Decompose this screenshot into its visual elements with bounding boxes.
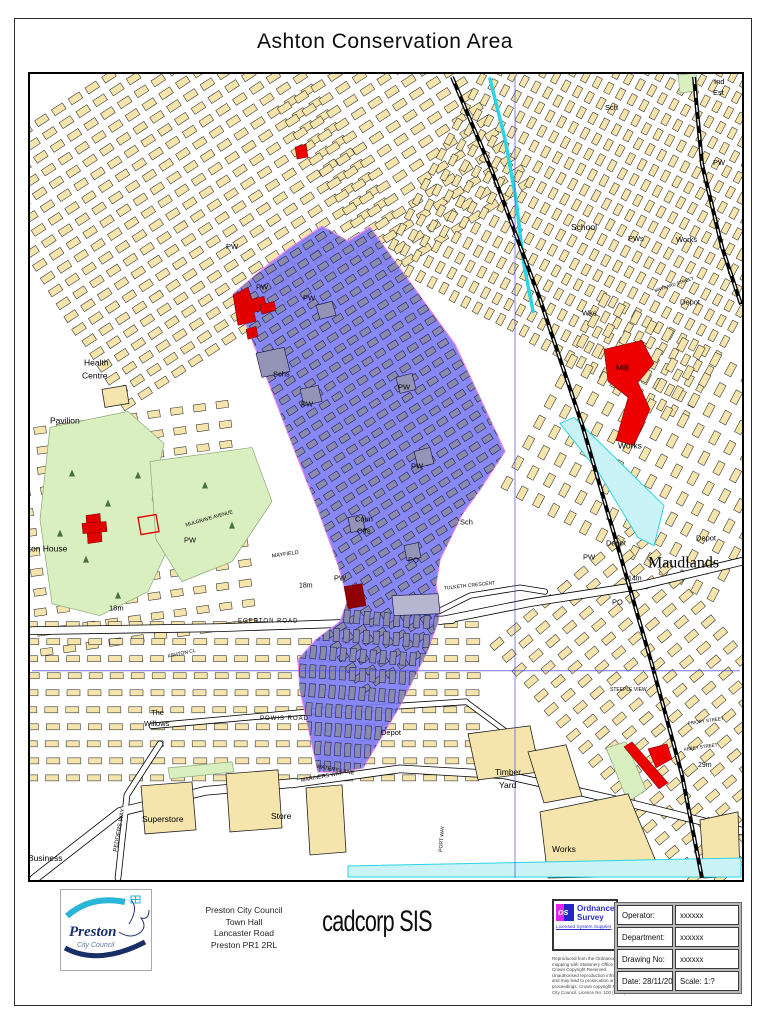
map-label: Sch [460,518,473,527]
map-label: PW [411,461,424,470]
map-label: STEEPLE VIEW [610,687,647,693]
map-label: Willows [144,719,170,728]
map-label: PW [583,553,596,562]
map-label: EGERTON ROAD [238,619,298,625]
map-label: PW [713,158,726,167]
map-label: Sch [605,103,618,112]
address-line: Preston PR1 2RL [158,940,330,952]
map-label: Depot [696,534,717,543]
drawing-info-table: Operator: xxxxxx Department: xxxxxx Draw… [614,902,742,994]
map-label: Centre [82,370,108,380]
map-root: eHealthCentrePavilionAshton House18mTheW… [30,74,742,880]
map-label: ABBEY STREET [683,742,718,752]
map-label: 14m [628,576,642,583]
map-label: PW [256,282,269,291]
os-mark-abbr: os [558,907,569,917]
map-label: POWIS ROAD [260,716,309,722]
table-row: Operator: xxxxxx [617,905,739,925]
ordnance-survey-logo: os Ordnance Survey Licensed System Suppl… [552,899,618,951]
map-label: Business [30,853,62,863]
map-label: MAYNARD STREET [654,276,695,294]
map-label: Wks [582,308,597,317]
drawing-no-value: xxxxxx [675,949,739,969]
map-label: PO [408,556,419,565]
os-tagline: Licensed System Supplier [556,925,614,930]
os-name-line: Survey [577,913,614,922]
operator-label: Operator: [617,905,673,925]
department-value: xxxxxx [675,927,739,947]
map-label: Ind [714,77,724,86]
drawing-no-label: Drawing No: [617,949,673,969]
address-line: Lancaster Road [158,928,330,940]
map-label: Yard [499,780,517,790]
map-label: Superstore [142,814,184,824]
map-label: 18m [109,604,124,613]
map-label: Coun [355,515,373,524]
logo-text-city-council: City Council [77,942,115,949]
map-label: Ashton House [30,544,68,554]
map-label: Works [552,844,576,854]
map-label: Pavilion [50,415,80,425]
page: Ashton Conservation Area eHealthCentrePa… [0,0,770,1024]
map-label: MAYFIELD [271,550,299,560]
logo-swoosh-top [67,900,125,916]
map-frame: eHealthCentrePavilionAshton House18mTheW… [28,72,744,882]
map-label: PO [612,598,623,607]
address-line: Preston City Council [158,905,330,917]
preston-city-council-logo: Preston City Council [60,889,152,971]
preston-logo-art: Preston City Council [61,890,151,970]
date-cell: Date: 28/11/2008 [617,971,673,991]
map-label: Works [618,440,642,450]
map-canvas: eHealthCentrePavilionAshton House18mTheW… [30,74,742,880]
operator-value: xxxxxx [675,905,739,925]
map-label: Health [84,357,109,367]
map-label: Offs [357,527,371,536]
map-label: Depot [381,728,402,737]
os-logo-name: Ordnance Survey [577,904,614,922]
map-label: Timber [495,767,521,777]
os-logo-mark-icon: os [556,904,574,921]
map-label: PWs [628,234,644,243]
scale-cell: Scale: 1:? [675,971,739,991]
map-label: The [151,708,164,717]
map-label: PRIORY STREET [687,716,724,726]
logo-lamb-icon [119,900,149,936]
map-label: Depot [680,297,701,306]
map-label: PW [184,536,197,545]
map-label: Store [271,811,292,821]
map-label: School [571,222,597,232]
map-label: 18m [299,583,313,590]
logo-text-preston: Preston [69,924,117,940]
os-name-line: Ordnance [577,904,614,913]
map-label: Maudlands [648,555,719,572]
map-label: Mill [616,362,629,372]
council-address: Preston City Council Town Hall Lancaster… [158,905,330,951]
table-row: Drawing No: xxxxxx [617,949,739,969]
map-label: Schs [273,369,290,378]
map-label: PW [303,293,316,302]
map-label: PW [398,382,411,391]
map-label: Works [676,235,697,244]
table-row: Department: xxxxxx [617,927,739,947]
map-label: Depot [606,539,627,548]
map-label: PORT WAY [438,825,446,852]
map-label: PW [301,399,314,408]
department-label: Department: [617,927,673,947]
address-line: Town Hall [158,917,330,929]
cadcorp-sis-wordmark: cadcorp SIS [316,900,438,944]
map-label: Est [713,88,725,97]
map-label: PW [334,574,347,583]
table-row: Date: 28/11/2008 Scale: 1:? [617,971,739,991]
map-label: 29m [698,762,712,769]
map-title: Ashton Conservation Area [0,30,770,54]
map-label: PW [226,242,239,251]
